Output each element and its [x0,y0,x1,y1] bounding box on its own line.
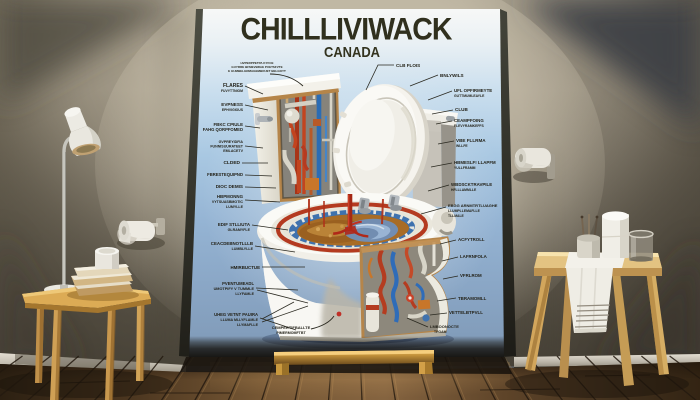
svg-text:EMLACETV: EMLACETV [223,149,243,153]
svg-text:CHILLLIVIWACK: CHILLLIVIWACK [241,11,453,47]
svg-text:VETTELBTPVLL: VETTELBTPVLL [449,310,483,315]
svg-text:E GUMBELGRMAGEMBOUET BELGOYT: E GUMBELGRMAGEMBOUET BELGOYT [228,69,286,73]
svg-text:LAFRNFOLA: LAFRNFOLA [460,254,488,259]
svg-text:WLLFE: WLLFE [456,144,468,148]
svg-text:LLYFAMLE: LLYFAMLE [235,292,254,296]
svg-text:GUTTMUMLEAYLE: GUTTMUMLEAYLE [454,94,485,98]
svg-text:EBGG ARNMTRTLUAGHE: EBGG ARNMTRTLUAGHE [448,203,498,208]
svg-text:FUVYTTNIOM: FUVYTTNIOM [221,89,243,93]
svg-text:CLB FLOIS: CLB FLOIS [396,63,420,68]
svg-text:YULLFRAMM: YULLFRAMM [454,166,476,170]
svg-text:UHEG VETNT PAUIRA: UHEG VETNT PAUIRA [214,312,258,317]
svg-text:CLUB: CLUB [455,107,468,112]
svg-text:EPHVIGIOUS: EPHVIGIOUS [222,108,244,112]
svg-text:CANADA: CANADA [324,44,380,61]
svg-text:VBE FLLRMA: VBE FLLRMA [456,138,486,143]
svg-text:HBPMONNG: HBPMONNG [217,194,244,199]
svg-text:UFL OPFIRMEYTE: UFL OPFIRMEYTE [454,88,492,93]
svg-text:LLUMA MLLYFLAMLE: LLUMA MLLYFLAMLE [221,318,259,322]
svg-text:WBDSCKTRAVPILE: WBDSCKTRAVPILE [451,182,492,187]
svg-text:HFLLLAMMLLE: HFLLLAMMLLE [451,188,477,192]
svg-text:VFRLROM: VFRLROM [460,273,482,278]
svg-text:LUMYLLE: LUMYLLE [226,205,244,209]
svg-text:LLYMAFLLE: LLYMAFLLE [237,323,259,327]
svg-text:EVPNESS: EVPNESS [221,102,243,107]
svg-text:BNLYWILS: BNLYWILS [440,73,464,78]
svg-text:DIOC DEMIS: DIOC DEMIS [216,184,243,189]
svg-text:TROAM: TROAM [434,330,447,334]
svg-text:GLRAMYFLE: GLRAMYFLE [228,228,251,232]
svg-text:FUNNISUURATEET: FUNNISUURATEET [210,145,243,149]
svg-text:CEMPERTIFBALLTE: CEMPERTIFBALLTE [272,325,311,330]
svg-text:TBRAMOMLL: TBRAMOMLL [458,296,487,301]
svg-text:VYTSUASBMOTIC: VYTSUASBMOTIC [212,200,244,204]
svg-text:ACFYTROLL: ACFYTROLL [458,237,485,242]
svg-text:LUMBLYLLE: LUMBLYLLE [232,247,254,251]
svg-text:LMBOONOCTE: LMBOONOCTE [430,324,459,329]
svg-text:CEAMPFOING: CEAMPFOING [454,118,484,123]
svg-text:CEACDEBNOTLLLB: CEACDEBNOTLLLB [211,241,253,246]
svg-text:FBRESTEQUIPND: FBRESTEQUIPND [207,172,243,177]
svg-text:PIMERMOMFTBT: PIMERMOMFTBT [276,331,306,335]
svg-text:HBMESLF! LLAPFM: HBMESLF! LLAPFM [454,160,496,165]
svg-text:LLUMPLLEMAFLLE: LLUMPLLEMAFLLE [448,209,481,213]
svg-text:GVPREYIDFIA: GVPREYIDFIA [219,140,244,144]
svg-text:HMIRBUCTUE: HMIRBUCTUE [230,265,260,270]
svg-text:FAHG QORPFOMED: FAHG QORPFOMED [203,127,243,132]
svg-text:CLDED: CLDED [223,160,240,166]
svg-text:FLEVYRAMKEFFS: FLEVYRAMKEFFS [454,124,485,128]
svg-text:UMOTPIFY V TUMMLE: UMOTPIFY V TUMMLE [214,287,255,291]
svg-text:PVENTUMEADL: PVENTUMEADL [222,281,254,286]
svg-text:TLLMALE: TLLMALE [448,214,465,218]
svg-text:EDIF STLLIUTA: EDIF STLLIUTA [218,222,251,227]
